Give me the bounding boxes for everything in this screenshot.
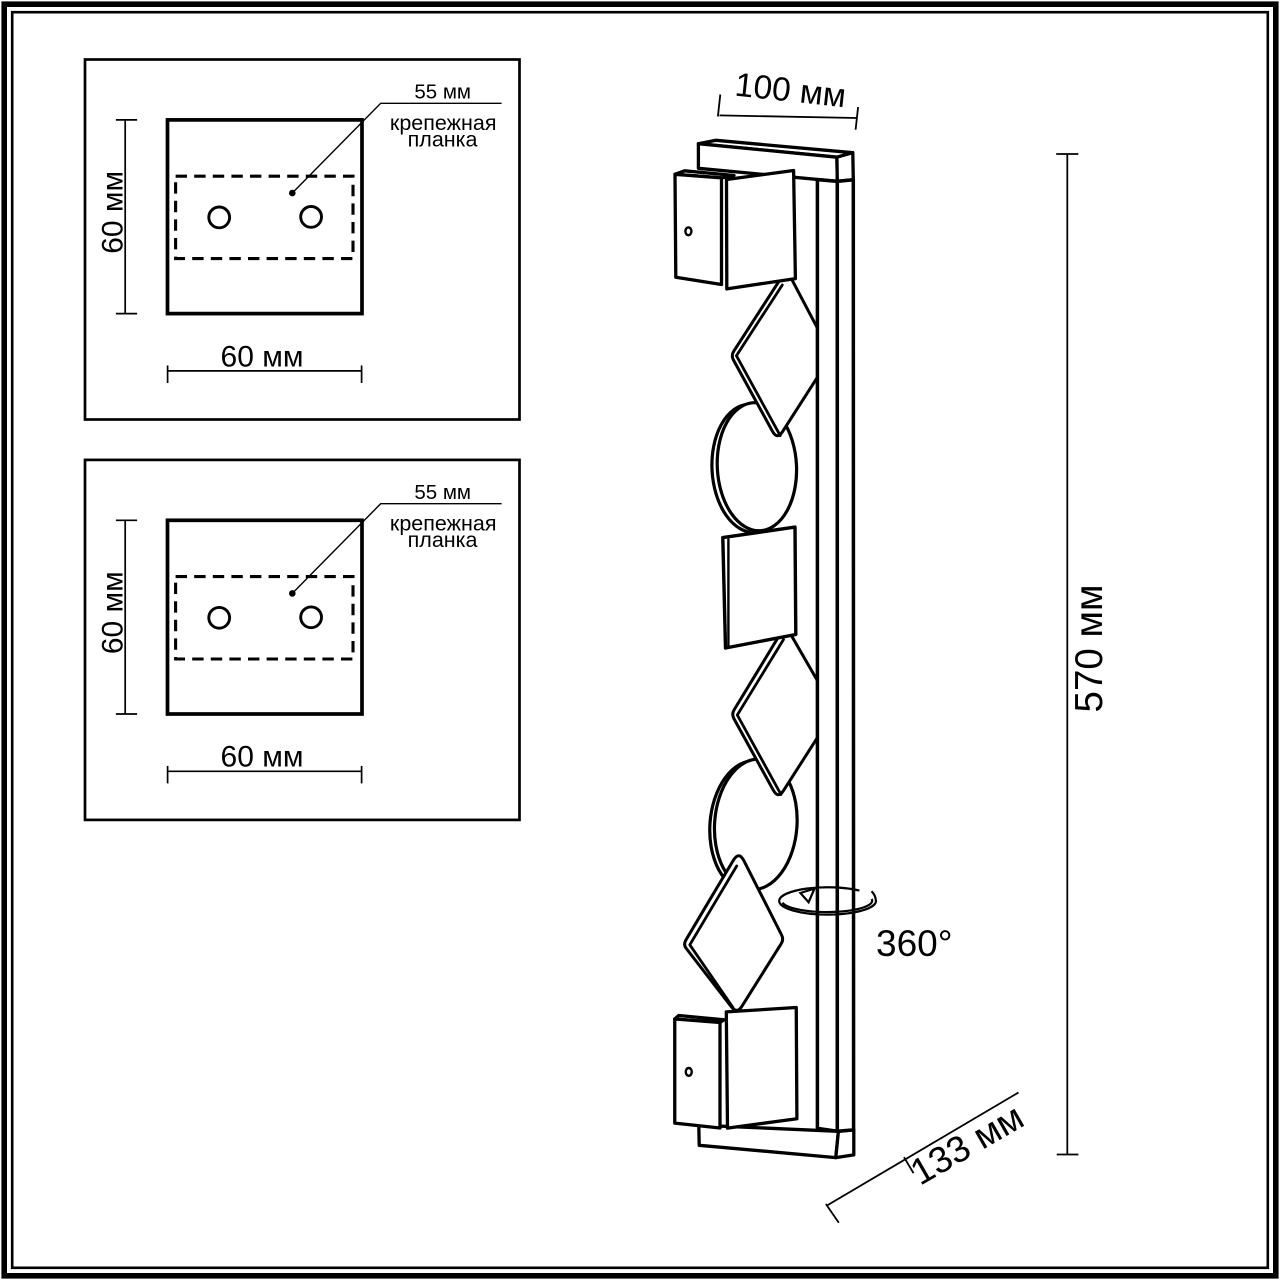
- svg-text:60 мм: 60 мм: [221, 340, 304, 373]
- svg-text:планка: планка: [408, 128, 478, 152]
- svg-text:60 мм: 60 мм: [97, 171, 130, 254]
- svg-text:570 мм: 570 мм: [1068, 585, 1111, 713]
- svg-text:55 мм: 55 мм: [414, 81, 471, 104]
- svg-text:360°: 360°: [876, 923, 953, 964]
